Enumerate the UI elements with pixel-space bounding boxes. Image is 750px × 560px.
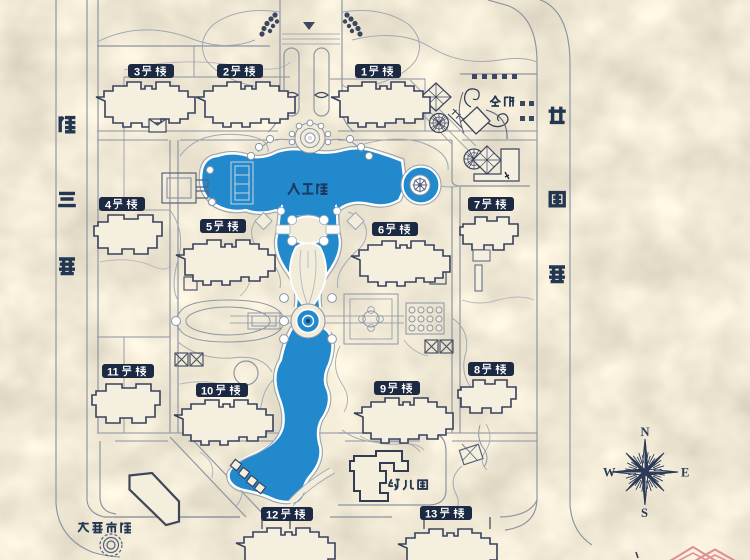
svg-text:S: S [641,506,648,520]
svg-text:8: 8 [474,365,480,377]
svg-text:N: N [641,425,650,439]
svg-text:4: 4 [105,200,112,212]
svg-text:5: 5 [206,222,212,234]
svg-text:3: 3 [134,67,140,79]
svg-text:2: 2 [223,67,229,79]
svg-text:12: 12 [266,510,278,522]
svg-text:6: 6 [378,225,384,237]
svg-text:13: 13 [425,509,437,521]
svg-text:E: E [681,466,689,480]
svg-text:10: 10 [201,386,213,398]
svg-text:11: 11 [107,367,119,379]
svg-text:W: W [603,466,616,480]
svg-text:1: 1 [361,67,367,79]
svg-text:9: 9 [380,384,386,396]
svg-text:7: 7 [474,200,480,212]
